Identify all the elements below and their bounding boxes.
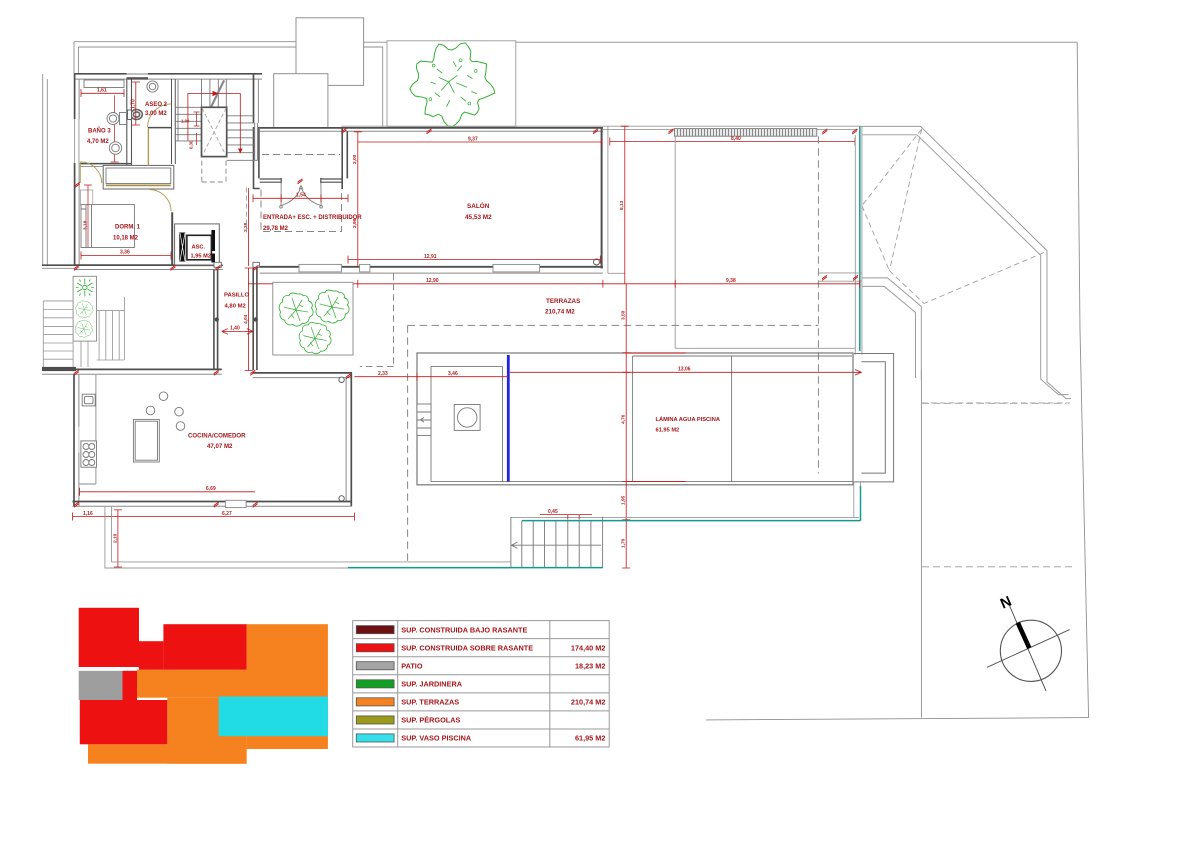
svg-text:0,30: 0,30 <box>188 140 193 149</box>
svg-text:1,95 M2: 1,95 M2 <box>191 254 212 260</box>
svg-text:61,95 M2: 61,95 M2 <box>656 428 680 434</box>
svg-text:18,23 M2: 18,23 M2 <box>575 661 605 670</box>
svg-text:ENTRADA+ ESC. + DISTRIBUIDOR: ENTRADA+ ESC. + DISTRIBUIDOR <box>263 215 362 221</box>
svg-text:DORM. 1: DORM. 1 <box>115 225 141 231</box>
svg-text:1,70: 1,70 <box>130 99 136 109</box>
svg-text:1,70: 1,70 <box>621 538 627 548</box>
svg-text:2,00: 2,00 <box>352 154 358 164</box>
svg-text:COCINA/COMEDOR: COCINA/COMEDOR <box>188 433 246 440</box>
svg-text:6,27: 6,27 <box>222 511 232 517</box>
svg-text:47,07 M2: 47,07 M2 <box>207 443 233 450</box>
svg-text:2,10: 2,10 <box>112 533 118 543</box>
svg-text:3,00 M2: 3,00 M2 <box>145 111 167 117</box>
svg-text:4,80 M2: 4,80 M2 <box>225 304 247 310</box>
svg-text:4,04: 4,04 <box>243 314 249 324</box>
svg-text:1,40: 1,40 <box>230 325 240 331</box>
svg-text:12,91: 12,91 <box>424 254 437 260</box>
svg-text:4,76: 4,76 <box>621 414 627 424</box>
svg-text:1,00: 1,00 <box>181 119 190 124</box>
svg-text:3,18: 3,18 <box>83 220 89 230</box>
svg-text:SUP. CONSTRUIDA BAJO RASANTE: SUP. CONSTRUIDA BAJO RASANTE <box>401 625 527 634</box>
svg-text:SUP. CONSTRUIDA SOBRE RASANTE: SUP. CONSTRUIDA SOBRE RASANTE <box>401 643 533 652</box>
svg-text:PATIO: PATIO <box>401 661 423 670</box>
svg-text:210,74 M2: 210,74 M2 <box>571 698 605 707</box>
svg-text:TERRAZAS: TERRAZAS <box>546 298 580 305</box>
svg-text:61,95 M2: 61,95 M2 <box>575 734 605 743</box>
svg-text:174,40 M2: 174,40 M2 <box>571 643 605 652</box>
svg-text:3,50: 3,50 <box>621 310 627 320</box>
svg-text:1,95: 1,95 <box>621 495 627 505</box>
svg-text:13,06: 13,06 <box>678 367 691 373</box>
svg-text:LÁMINA AGUA PISCINA: LÁMINA AGUA PISCINA <box>656 416 720 423</box>
svg-text:SUP. JARDINERA: SUP. JARDINERA <box>401 680 462 689</box>
svg-text:6,69: 6,69 <box>206 486 216 492</box>
svg-text:2,33: 2,33 <box>378 371 388 377</box>
svg-text:1,16: 1,16 <box>83 511 93 517</box>
svg-text:2,98: 2,98 <box>352 218 358 228</box>
svg-text:9,38: 9,38 <box>726 278 736 284</box>
svg-text:1,61: 1,61 <box>97 88 107 94</box>
svg-text:BAÑO 3: BAÑO 3 <box>88 128 111 135</box>
svg-text:10,18 M2: 10,18 M2 <box>113 236 139 242</box>
svg-text:SUP. VASO PISCINA: SUP. VASO PISCINA <box>401 734 472 743</box>
svg-text:4,70 M2: 4,70 M2 <box>87 139 109 145</box>
svg-text:PASILLO: PASILLO <box>224 293 250 299</box>
svg-text:12,90: 12,90 <box>426 278 439 284</box>
svg-text:3,36: 3,36 <box>120 250 130 256</box>
svg-text:9,37: 9,37 <box>468 136 478 142</box>
svg-text:45,53 M2: 45,53 M2 <box>465 214 492 221</box>
svg-text:SUP. PÉRGOLAS: SUP. PÉRGOLAS <box>401 716 460 725</box>
svg-text:210,74 M2: 210,74 M2 <box>545 309 575 316</box>
svg-text:1,54: 1,54 <box>296 193 306 199</box>
svg-text:SUP. TERRAZAS: SUP. TERRAZAS <box>401 698 459 707</box>
svg-text:8,13: 8,13 <box>619 200 625 210</box>
svg-text:29,78 M2: 29,78 M2 <box>263 226 289 232</box>
svg-text:0,45: 0,45 <box>548 509 558 515</box>
svg-text:8,40: 8,40 <box>731 136 741 142</box>
svg-text:3,46: 3,46 <box>448 371 458 377</box>
svg-text:SALÓN: SALÓN <box>467 201 490 210</box>
svg-text:ASC.: ASC. <box>192 245 206 251</box>
svg-text:ASEO 2: ASEO 2 <box>145 102 168 108</box>
